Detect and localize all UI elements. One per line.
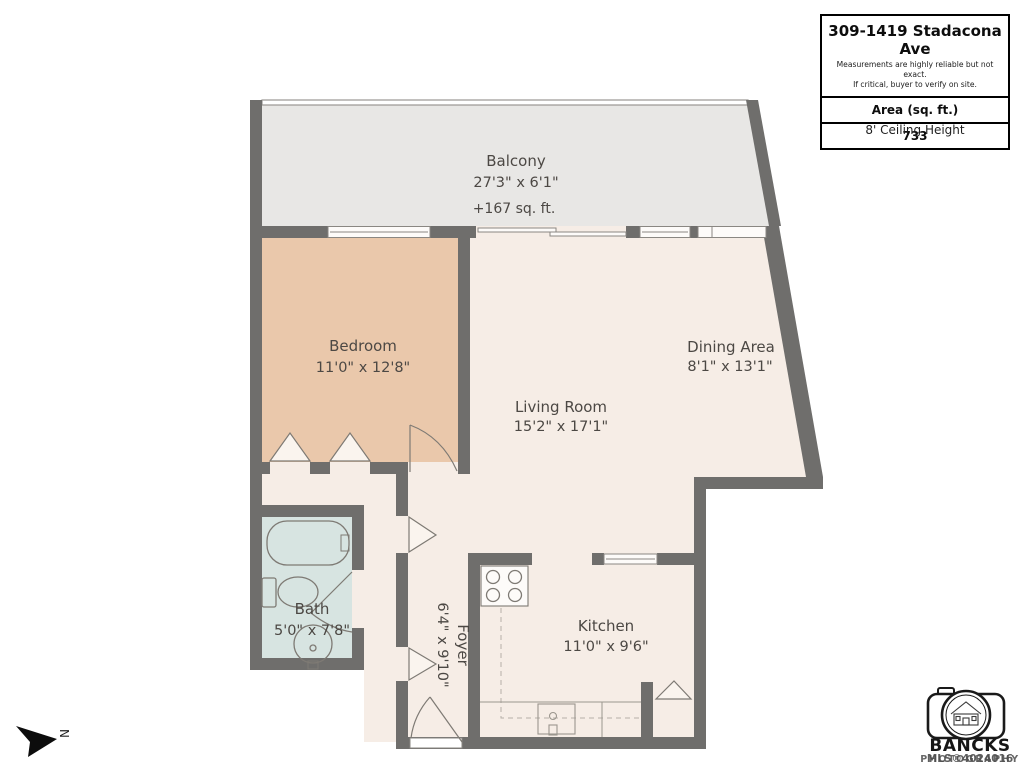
ceiling-height-note: 8' Ceiling Height — [820, 123, 1010, 137]
listing-address: 309-1419 Stadacona Ave — [822, 16, 1008, 58]
north-arrow-icon — [16, 726, 57, 757]
dining-label: Dining Area — [687, 338, 775, 356]
bedroom-dims: 11'0" x 12'8" — [316, 360, 410, 376]
kitchen-dims: 11'0" x 9'6" — [563, 639, 648, 655]
foyer-label: Foyer — [454, 624, 472, 666]
balcony-area-note: +167 sq. ft. — [473, 201, 556, 217]
bath-label: Bath — [295, 600, 330, 618]
bath-dims: 5'0" x 7'8" — [274, 623, 350, 639]
floorplan-page: Balcony 27'3" x 6'1" +167 sq. ft. Bedroo… — [0, 0, 1024, 768]
balcony-dims: 27'3" x 6'1" — [473, 175, 558, 191]
north-label: N — [57, 729, 71, 738]
bedroom-window — [328, 227, 430, 238]
foyer-dims: 6'4" x 9'10" — [434, 602, 450, 687]
brand-overlap-line: PHOTOGRAPHY MLS®4024016 — [912, 754, 1024, 768]
bedroom-label: Bedroom — [329, 337, 397, 355]
mls-number: MLS®4024016 — [912, 753, 1024, 765]
disclaimer-line-2: If critical, buyer to verify on site. — [853, 80, 977, 89]
dining-window-right — [698, 227, 766, 238]
living-sliding-door — [476, 226, 626, 238]
living-dims: 15'2" x 17'1" — [514, 419, 608, 435]
kitchen-label: Kitchen — [578, 617, 634, 635]
photographer-branding: BANCKS PHOTOGRAPHY MLS®4024016 — [920, 682, 1020, 766]
entry-door-threshold — [410, 738, 462, 748]
area-label: Area (sq. ft.) — [822, 96, 1008, 122]
living-label: Living Room — [515, 398, 607, 416]
kitchen-passthrough-window — [604, 554, 657, 564]
north-arrow: N — [16, 726, 71, 757]
stove — [481, 566, 528, 606]
balcony-label: Balcony — [486, 152, 546, 170]
dining-dims: 8'1" x 13'1" — [687, 359, 772, 375]
measurement-disclaimer: Measurements are highly reliable but not… — [822, 58, 1008, 96]
disclaimer-line-1: Measurements are highly reliable but not… — [837, 60, 994, 79]
dining-window-left — [640, 227, 690, 238]
